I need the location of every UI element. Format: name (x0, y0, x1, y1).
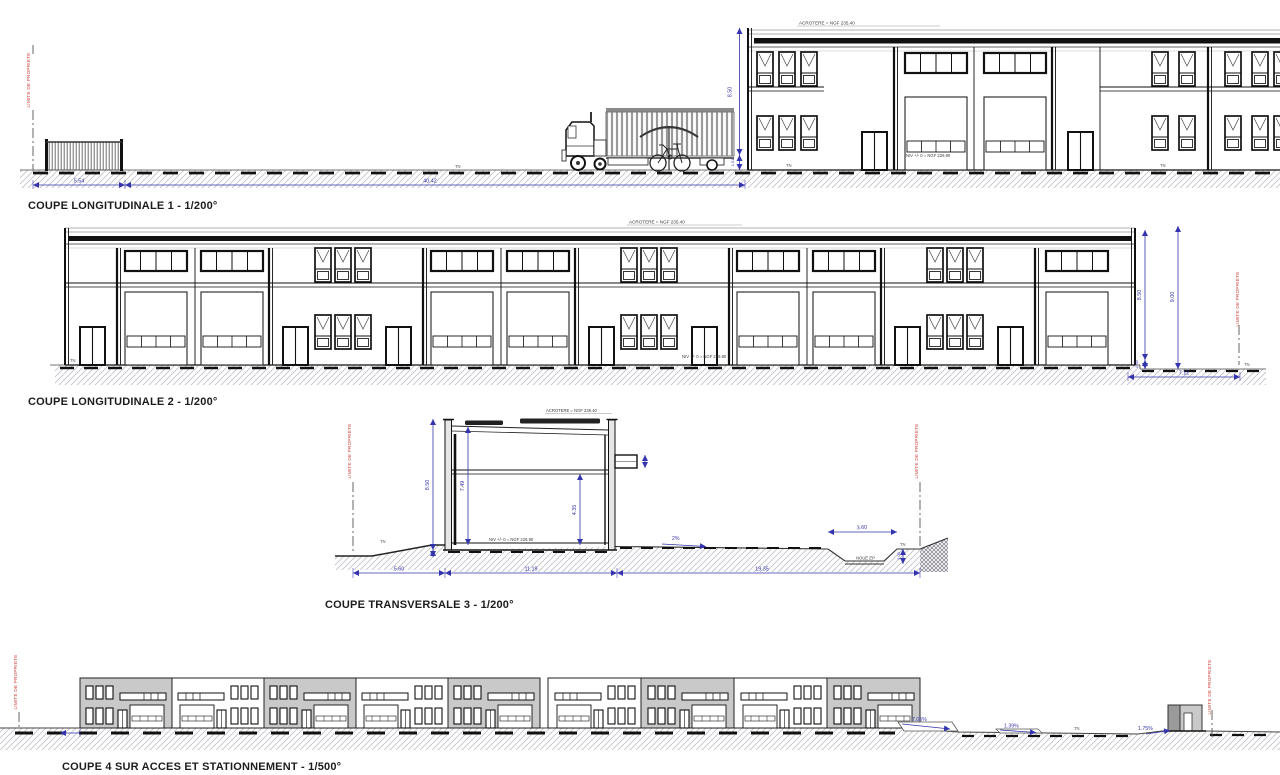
tn-label: TN (380, 539, 386, 544)
tn-label: TN (1160, 163, 1166, 168)
casement-window (801, 116, 817, 150)
property-limit-label: LIMITE DE PROPRIETE (914, 423, 919, 478)
casement-window (1252, 52, 1268, 86)
sectional-door (984, 97, 1046, 170)
casement-window (1274, 116, 1280, 150)
section-title-coupe4: COUPE 4 SUR ACCES ET STATIONNEMENT - 1/5… (62, 761, 341, 773)
dim-fence-width: 5.54 (74, 179, 85, 185)
slope-label: 1.75% (1138, 726, 1153, 732)
property-limit-label: LIMITE DE PROPRIETE (13, 654, 18, 709)
dim-left-setback: 5.60 (394, 567, 405, 573)
dim-building-height: 8.50 (728, 87, 734, 98)
parapet-band (68, 236, 1132, 241)
casement-window (1225, 116, 1241, 150)
casement-window (1152, 52, 1168, 86)
dim-right-width: 19.35 (755, 567, 769, 573)
section-title-coupe1: COUPE LONGITUDINALE 1 - 1/200° (28, 200, 218, 212)
truck (562, 108, 734, 170)
property-limit-label: LIMITE DE PROPRIETE (1235, 271, 1240, 326)
small-structure (1164, 705, 1206, 731)
tn-label: TN (455, 164, 461, 169)
property-limit: LIMITE DE PROPRIETE (1235, 271, 1240, 365)
tn-label: TN (70, 358, 76, 363)
tn-label: TN (900, 542, 906, 547)
roof-equipment (520, 419, 600, 424)
noue-label: NOUE EP (856, 556, 875, 561)
casement-window (801, 52, 817, 86)
property-limit-label: LIMITE DE PROPRIETE (1207, 659, 1212, 714)
slope-label: 1.39% (1004, 724, 1019, 730)
tn-label: TN (786, 163, 792, 168)
dim-interior-height: 7.49 (460, 481, 466, 492)
property-limit-label: LIMITE DE PROPRIETE (26, 52, 31, 107)
tn-label: TN (1244, 362, 1250, 367)
dim-total-height: 9.00 (1170, 292, 1176, 303)
dimensions: 8.50 0.50 9.00 7.12 (1128, 226, 1240, 381)
architectural-sections-sheet: TN TN TN LIMITE DE PROPRIETE (0, 0, 1280, 775)
sectional-door (905, 97, 967, 170)
casement-window (757, 116, 773, 150)
acrotere-label: ACROTERE = NGF 235.40 (546, 408, 598, 413)
dim-noue-depth: 1.00 (896, 551, 901, 559)
acrotere-label: ACROTERE = NGF 235.40 (799, 21, 855, 26)
building-elevation: ACROTERE = NGF 235.40 NIV +/- 0 = NGF 22… (65, 220, 1135, 366)
casement-window (1252, 116, 1268, 150)
strip-window (905, 53, 967, 73)
casement-window (779, 116, 795, 150)
coupe-1: TN TN TN LIMITE DE PROPRIETE (20, 21, 1280, 213)
dim-yard-width: 40.42 (423, 179, 437, 185)
dim-tn-offset: 1.01 (730, 159, 735, 167)
casement-window (757, 52, 773, 86)
coupe-4: TN TN TN LIMITE DE PROPRIETE LIMITE DE P… (0, 654, 1280, 773)
sectional-door (1046, 292, 1108, 365)
coupe-2: TN TN ACROTERE = NGF 235.40 (28, 220, 1266, 409)
dim-building-height: 8.50 (425, 480, 431, 491)
property-limit-label: LIMITE DE PROPRIETE (347, 423, 352, 478)
double-door (862, 132, 887, 170)
dim-mezzanine-height: 4.35 (572, 505, 578, 516)
ground (0, 728, 1280, 750)
ground: NOUE EP (335, 538, 948, 572)
dim-building-width: 11.19 (524, 567, 537, 573)
casement-window (1274, 52, 1280, 86)
property-limit: LIMITE DE PROPRIETE (26, 45, 33, 170)
building-row-2 (548, 678, 920, 728)
casement-window (1179, 116, 1195, 150)
slope-label: 7.05% (912, 717, 927, 723)
strip-window (1046, 251, 1108, 271)
dim-tn-offset: 0.50 (1134, 359, 1139, 367)
acrotere-label: ACROTERE = NGF 235.40 (629, 220, 685, 225)
double-door (1068, 132, 1093, 170)
casement-window (1225, 52, 1241, 86)
strip-window (984, 53, 1046, 73)
level-label: NIV +/- 0 = NGF 226.90 (682, 354, 727, 359)
double-door (998, 327, 1023, 365)
building-section: ACROTERE = NGF 235.40 NIV +/- 0 = NGF 22… (443, 408, 645, 550)
roof-equipment (465, 421, 503, 426)
casement-window (1179, 52, 1195, 86)
dim-noue-width: 3.60 (856, 525, 867, 532)
tn-label: TN (1074, 726, 1080, 731)
dim-right-setback: 7.12 (1179, 371, 1190, 377)
casement-window (779, 52, 795, 86)
dim-building-height: 8.50 (1137, 290, 1143, 301)
casement-window (1152, 116, 1168, 150)
ground (50, 365, 1266, 385)
slope-label: 2% (672, 536, 680, 542)
parapet-band (754, 38, 1280, 44)
level-label: NIV +/- 0 = NGF 226.90 (489, 537, 534, 542)
section-title-coupe3: COUPE TRANSVERSALE 3 - 1/200° (325, 599, 514, 611)
section-title-coupe2: COUPE LONGITUDINALE 2 - 1/200° (28, 396, 218, 408)
coupe-3: NOUE EP TN TN LIMITE DE PROPRIETE LIMITE… (325, 408, 948, 611)
building-elevation: ACROTERE = NGF 235.40 (748, 21, 1280, 171)
building-row-1 (80, 678, 540, 728)
fence (46, 139, 122, 171)
level-label: NIV +/- 0 = NGF 226.90 (906, 153, 951, 158)
